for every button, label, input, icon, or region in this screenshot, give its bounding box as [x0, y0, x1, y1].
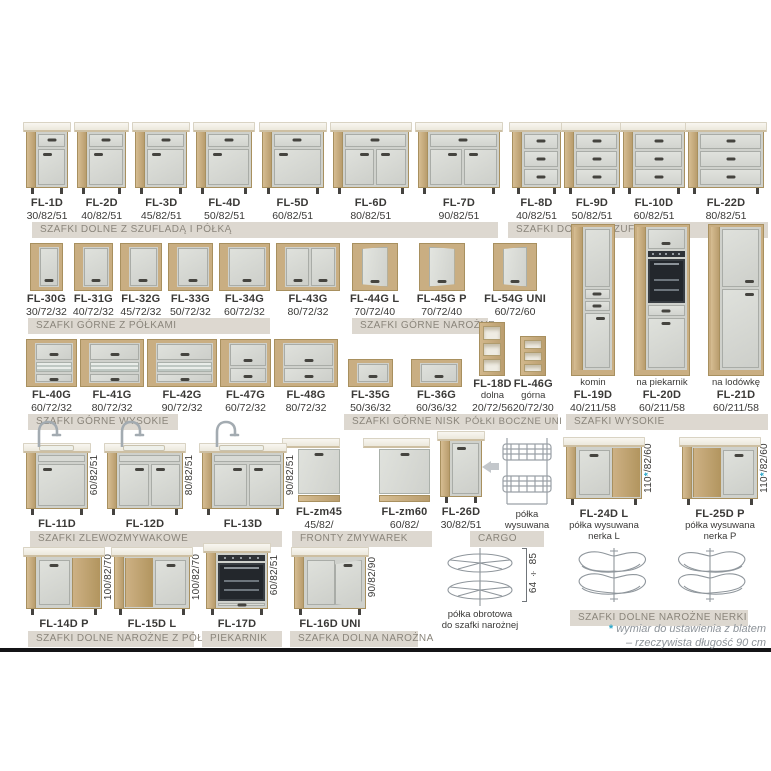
cabinet-leg	[693, 188, 696, 194]
cabinet-leg	[445, 497, 448, 503]
product-dims: 60/36/32	[416, 402, 457, 414]
wood-side	[263, 132, 272, 187]
door-front	[274, 149, 321, 185]
cabinet-handle	[94, 153, 103, 156]
product-code: FL-30G	[26, 293, 67, 306]
cabinet-illustration	[107, 443, 183, 509]
cabinet-handle	[437, 280, 446, 283]
product-code: FL-26D	[441, 506, 482, 519]
product-card: półkawysuwana	[499, 434, 555, 531]
drawer-front	[89, 134, 123, 147]
product-dims-vertical: 110*/82/60	[643, 443, 654, 493]
cabinet-handle	[242, 279, 251, 282]
product-card: FL-44G L70/72/40	[350, 243, 399, 318]
cabinet-illustration	[688, 122, 764, 188]
product-code: FL-20D	[636, 389, 687, 402]
product-card: 80/82/51FL-12D	[107, 443, 183, 531]
product-code: FL-48G	[286, 389, 327, 402]
countertop	[23, 443, 91, 453]
section-szafki-dolne-z-szufladami: FL-8D40/82/51 FL-9D50/82/51 FL-10D60/82/…	[508, 128, 768, 238]
product-dims: 30/72/32	[26, 306, 67, 318]
cabinet-illustration	[135, 122, 187, 188]
product-dims: 80/82/51	[350, 210, 391, 222]
cabinet-handle	[592, 158, 601, 161]
product-code: FL-9D	[572, 197, 613, 210]
product-note: nerka L	[569, 532, 639, 542]
cabinet-handle	[745, 280, 754, 283]
door-front	[40, 248, 58, 286]
cabinet-handle	[344, 564, 353, 567]
product-card: FL-zm6060/82/	[379, 438, 430, 531]
cabinet-handle	[110, 353, 119, 356]
cabinet-handle	[360, 153, 369, 156]
product-card: FL-30G30/72/32	[26, 243, 67, 318]
product-label: FL-9D50/82/51	[572, 197, 613, 222]
cabinet-illustration	[219, 243, 270, 291]
door-front	[585, 229, 610, 287]
product-card: FL-46Ggórna20/72/30	[513, 336, 554, 414]
glass-band	[36, 362, 72, 372]
cabinet-illustration	[682, 437, 758, 499]
cabinet-illustration	[419, 243, 465, 291]
drawer-front	[700, 169, 761, 185]
drawer-front	[208, 134, 249, 147]
countertop	[111, 547, 193, 557]
section-szafki-gorne-narozne: FL-44G L70/72/40FL-45G P70/72/40FL-54G U…	[346, 244, 550, 334]
section-piekarnik: 60/82/51FL-17D PIEKARNIK	[202, 550, 286, 647]
product-dims: 70/72/40	[417, 306, 467, 318]
faucet-icon	[210, 419, 244, 447]
door-front	[84, 248, 108, 286]
product-card: FL-42G90/72/32	[147, 339, 217, 414]
cabinet-leg	[492, 188, 495, 194]
product-label: FL-45G P70/72/40	[417, 293, 467, 318]
product-card: FL-4D50/82/51	[196, 122, 252, 222]
cabinet-handle	[662, 309, 671, 312]
product-card: na lodówkęFL-21D60/211/58	[708, 224, 764, 414]
cabinet-handle	[593, 293, 602, 296]
cabinet-illustration	[512, 122, 561, 188]
product-note: komin	[570, 378, 616, 388]
cabinet-handle	[745, 293, 754, 296]
asterisk: *	[643, 472, 654, 476]
product-label: FL-10D60/82/51	[634, 197, 675, 222]
cabinet-illustration	[564, 122, 620, 188]
cabinet-handle	[244, 375, 253, 378]
cabinet-leg	[569, 188, 572, 194]
dishwasher-front-illustration	[298, 438, 340, 502]
cabinet-handle	[188, 279, 197, 282]
product-card: 64 ÷ 85półka obrotowado szafki narożnej	[438, 546, 522, 631]
product-card: FL-7D90/82/51	[418, 122, 500, 222]
cabinet-handle	[304, 359, 313, 362]
product-row: FL-26D30/82/51półkawysuwana	[436, 436, 548, 531]
product-label: FL-zm6060/82/	[381, 506, 427, 531]
drawer-front	[635, 151, 682, 167]
countertop	[282, 438, 340, 448]
product-card: 90/82/90FL-16D UNI	[294, 547, 366, 631]
wood-side	[295, 557, 304, 608]
product-dims: 20/72/30	[513, 402, 554, 414]
product-dims: 60/211/58	[636, 402, 687, 414]
door-front	[430, 149, 463, 185]
product-label: FL-26D30/82/51	[441, 506, 482, 531]
corner-door-front	[503, 247, 527, 287]
cabinet-leg	[207, 509, 210, 515]
door-front	[421, 364, 457, 382]
door-front	[130, 248, 157, 286]
section-szafki-dolne-narozne-nerki: 110*/82/60FL-24D Lpółka wysuwananerka L …	[562, 436, 762, 626]
wood-side	[108, 453, 117, 508]
product-dims: 60/82/51	[272, 210, 313, 222]
product-note: półka wysuwana	[685, 521, 755, 531]
cabinet-handle	[135, 468, 144, 471]
drawer-front	[274, 134, 321, 147]
door-front	[38, 464, 85, 506]
cabinet-handle	[654, 140, 663, 143]
wood-panel	[72, 558, 100, 607]
product-label: FL-6D80/82/51	[350, 197, 391, 222]
cabinet-leg	[474, 497, 477, 503]
cabinet-handle	[50, 353, 59, 356]
product-label: FL-35G50/36/32	[350, 389, 391, 414]
product-dims: 60/82/51	[634, 210, 675, 222]
product-code: FL-42G	[162, 389, 203, 402]
cabinet-leg	[31, 509, 34, 515]
cabinet-illustration	[80, 339, 144, 387]
product-card: FL-22D80/82/51	[688, 122, 764, 222]
door-front	[298, 449, 340, 494]
cabinet-handle	[293, 139, 302, 142]
product-note: nerka P	[685, 532, 755, 542]
wood-side	[136, 132, 145, 187]
cabinet-illustration	[74, 243, 113, 291]
countertop	[74, 122, 129, 132]
cabinet-handle	[596, 317, 605, 320]
product-dims: 80/72/32	[286, 402, 327, 414]
drawer-front	[635, 169, 682, 185]
product-label: FL-42G90/72/32	[162, 389, 203, 414]
oven-icon	[648, 259, 685, 303]
door-front	[90, 374, 139, 382]
cabinet-handle	[47, 139, 56, 142]
product-dims-vertical: 110*/82/60	[759, 443, 770, 493]
door-front	[648, 229, 685, 249]
wood-panel	[612, 448, 640, 497]
cabinet-leg	[756, 188, 759, 194]
product-code: FL-16D UNI	[299, 618, 360, 631]
product-card: FL-45G P70/72/40	[417, 243, 467, 318]
product-code: FL-15D L	[128, 618, 177, 631]
cabinet-handle	[592, 175, 601, 178]
product-code: FL-12D	[126, 518, 164, 531]
cabinet-leg	[119, 609, 122, 615]
cabinet-handle	[662, 322, 671, 325]
door-front	[36, 344, 72, 360]
section-header: SZAFKI GÓRNE NISKIE	[344, 414, 466, 430]
cabinet-illustration	[77, 122, 126, 188]
product-code: FL-17D	[218, 618, 256, 631]
cabinet-handle	[44, 279, 53, 282]
product-label: FL-24D Lpółka wysuwananerka L	[569, 508, 639, 542]
product-code: FL-6D	[350, 197, 391, 210]
cabinet-leg	[94, 609, 97, 615]
drawer-front	[576, 151, 617, 167]
cabinet-handle	[152, 153, 161, 156]
cabinet-handle	[304, 375, 313, 378]
cabinet-leg	[179, 188, 182, 194]
countertop	[509, 122, 564, 132]
cabinet-illustration	[262, 122, 324, 188]
carousel-shelf-icon	[438, 546, 522, 608]
product-row: FL-40G60/72/32FL-41G80/72/32FL-42G90/72/…	[22, 338, 342, 414]
door-front	[379, 449, 430, 494]
door-front	[155, 560, 186, 605]
cabinet-illustration	[411, 359, 462, 387]
product-code: FL-14D P	[39, 618, 88, 631]
section-header: CARGO	[470, 531, 544, 547]
product-card: FL-2D40/82/51	[77, 122, 126, 222]
door-front	[36, 374, 72, 382]
cabinet-leg	[201, 188, 204, 194]
product-label: na lodówkęFL-21D60/211/58	[712, 378, 760, 414]
arrow-left-icon	[482, 461, 499, 473]
countertop	[363, 438, 430, 448]
product-card: 100/82/70FL-14D P	[26, 547, 102, 631]
product-note: półka wysuwana	[569, 521, 639, 531]
product-card: FL-35G50/36/32	[348, 359, 393, 414]
product-code: FL-19D	[570, 389, 616, 402]
product-dims-vertical: 60/82/51	[269, 555, 280, 596]
product-code: FL-4D	[204, 197, 245, 210]
product-note: do szafki narożnej	[442, 621, 519, 631]
cabinet-handle	[537, 140, 546, 143]
product-dims: 60/72/32	[225, 402, 266, 414]
cabinet-leg	[182, 609, 185, 615]
cabinet-leg	[299, 609, 302, 615]
section-header: SZAFKI DOLNE Z SZUFLADĄ I PÓŁKĄ	[32, 222, 498, 238]
product-label: FL-13D	[224, 518, 262, 531]
cabinet-handle	[166, 564, 175, 567]
product-card: FL-8D40/82/51	[512, 122, 561, 222]
product-card: FL-10D60/82/51	[623, 122, 685, 222]
product-code: FL-10D	[634, 197, 675, 210]
product-card: 60/82/51FL-17D	[206, 543, 268, 631]
product-note: dolna	[472, 391, 513, 401]
cabinet-handle	[254, 468, 263, 471]
cabinet-leg	[140, 188, 143, 194]
cabinet-handle	[435, 375, 444, 378]
cabinet-leg	[553, 188, 556, 194]
wood-side	[203, 453, 212, 508]
footnote-line-1: * wymiar do ustawienia z blatem	[609, 623, 766, 637]
product-card: FL-43G80/72/32	[276, 243, 340, 318]
drawer-front	[576, 134, 617, 150]
product-dims: 45/72/32	[120, 306, 161, 318]
product-card: 110*/82/60FL-25D Ppółka wysuwananerka P	[682, 437, 758, 542]
cabinet-leg	[750, 499, 753, 505]
product-row: FL-30G30/72/32FL-31G40/72/32FL-32G45/72/…	[22, 244, 344, 318]
product-card: FL-41G80/72/32	[80, 339, 144, 414]
section-szafki-zlewozmywakowe: 60/82/51FL-11D 80/82/51FL-12D 90/82/51FL…	[22, 436, 288, 547]
door-front	[214, 464, 247, 506]
product-dims: 90/82/51	[439, 210, 480, 222]
dimension-bracket	[522, 548, 527, 602]
cabinet-handle	[511, 280, 520, 283]
countertop	[561, 122, 623, 132]
cabinet-illustration	[26, 547, 102, 609]
door-front	[89, 149, 123, 185]
wood-panel	[693, 448, 721, 497]
cabinet-handle	[43, 153, 52, 156]
product-card: FL-6D80/82/51	[333, 122, 409, 222]
accessory-row	[562, 546, 762, 604]
door-front	[307, 560, 335, 605]
product-card: na piekarnikFL-20D60/211/58	[634, 224, 690, 414]
product-label: na piekarnikFL-20D60/211/58	[636, 378, 687, 414]
oven-controls	[218, 555, 265, 561]
cabinet-leg	[244, 188, 247, 194]
door-front	[178, 248, 208, 286]
drawer-front	[700, 134, 761, 150]
door-front	[376, 149, 406, 185]
product-label: FL-30G30/72/32	[26, 293, 67, 318]
door-front	[579, 450, 610, 495]
cabinet-handle	[213, 153, 222, 156]
countertop	[104, 443, 186, 453]
product-label: półka obrotowado szafki narożnej	[442, 610, 519, 631]
kidney-shelf-icon	[572, 546, 656, 604]
product-dims: 45/82/51	[141, 210, 182, 222]
product-card: FL-zm4545/82/	[296, 438, 342, 531]
countertop	[23, 547, 105, 557]
footnote-line-2: – rzeczywista długość 90 cm	[609, 637, 766, 651]
cabinet-leg	[60, 188, 63, 194]
product-card	[572, 546, 656, 604]
product-label: FL-48G80/72/32	[286, 389, 327, 414]
product-note: na piekarnik	[636, 378, 687, 388]
product-card: FL-18Ddolna20/72/56	[472, 322, 513, 414]
cabinet-handle	[654, 158, 663, 161]
wood-side	[441, 441, 450, 496]
product-code: FL-47G	[225, 389, 266, 402]
product-code: FL-2D	[81, 197, 122, 210]
product-code: FL-13D	[224, 518, 262, 531]
product-label: półkawysuwana	[505, 510, 549, 531]
drawer-front	[218, 603, 265, 606]
product-label: FL-31G40/72/32	[73, 293, 114, 318]
cabinet-leg	[401, 188, 404, 194]
countertop	[563, 437, 645, 447]
product-dims-vertical: 90/82/90	[367, 557, 378, 598]
door-front	[119, 464, 149, 506]
countertop	[620, 122, 688, 132]
cabinet-handle	[459, 139, 468, 142]
cargo-basket-icon	[499, 434, 555, 508]
cabinet-handle	[156, 468, 165, 471]
product-code: FL-5D	[272, 197, 313, 210]
section-polki-boczne-uni: FL-18Ddolna20/72/56FL-46Ggórna20/72/30 P…	[468, 334, 556, 430]
product-code: FL-33G	[170, 293, 211, 306]
section-szafki-gorne-niskie: FL-35G50/36/32FL-36G60/36/32 SZAFKI GÓRN…	[344, 338, 466, 430]
cabinet-illustration	[352, 243, 398, 291]
wood-side	[624, 132, 633, 187]
cabinet-leg	[316, 188, 319, 194]
product-dims: 80/72/32	[288, 306, 329, 318]
door-front	[157, 374, 212, 382]
drawer-front	[524, 169, 558, 185]
countertop	[259, 122, 327, 132]
section-header: SZAFKI GÓRNE Z PÓŁKAMI	[28, 318, 270, 334]
cabinet-illustration	[348, 359, 393, 387]
cabinet-leg	[517, 188, 520, 194]
wood-side	[683, 447, 692, 498]
cabinet-handle	[315, 453, 324, 456]
cabinet-leg	[276, 509, 279, 515]
cabinet-handle	[469, 153, 478, 156]
door-front	[464, 149, 497, 185]
section-szafki-dolne-narozne-z-polka: 100/82/70FL-14D P 100/82/70FL-15D L SZAF…	[22, 550, 194, 647]
cabinet-illustration	[26, 443, 88, 509]
product-card: 110*/82/60FL-24D Lpółka wysuwananerka L	[566, 437, 642, 542]
product-label: FL-33G50/72/32	[170, 293, 211, 318]
drawer-front	[648, 305, 685, 316]
cabinet-illustration	[571, 224, 615, 376]
product-label: FL-4D50/82/51	[204, 197, 245, 222]
drawer-front	[147, 134, 184, 147]
section-fronty-zmywarek: FL-zm4545/82/FL-zm6060/82/ FRONTY ZMYWAR…	[292, 436, 434, 547]
wood-side	[567, 447, 576, 498]
wood-side	[334, 132, 343, 187]
wood-side	[197, 132, 206, 187]
cabinet-handle	[662, 242, 671, 245]
product-label: FL-34G60/72/32	[224, 293, 265, 318]
product-label: FL-47G60/72/32	[225, 389, 266, 414]
product-card: FL-36G60/36/32	[411, 359, 462, 414]
product-label: FL-zm4545/82/	[296, 506, 342, 531]
kidney-shelf-icon	[668, 546, 752, 604]
product-dims: 60/72/60	[484, 306, 546, 318]
cabinet-illustration	[623, 122, 685, 188]
cabinet-handle	[293, 279, 302, 282]
cabinet-illustration	[566, 437, 642, 499]
product-code: FL-41G	[92, 389, 133, 402]
drawer-front	[38, 134, 65, 147]
section-header: SZAFKI WYSOKIE	[566, 414, 768, 430]
catalog-page: FL-1D30/82/51 FL-2D40/82/51 FL-3D45/82/5…	[0, 0, 771, 771]
product-code: FL-3D	[141, 197, 182, 210]
drawer-front	[430, 134, 497, 147]
corner-door-front	[429, 247, 455, 287]
product-label: FL-17D	[218, 618, 256, 631]
product-row: FL-zm4545/82/FL-zm6060/82/	[292, 436, 434, 531]
door-front	[249, 464, 282, 506]
product-row: FL-1D30/82/51 FL-2D40/82/51 FL-3D45/82/5…	[22, 128, 504, 222]
product-dims: 50/82/51	[204, 210, 245, 222]
product-row: FL-44G L70/72/40FL-45G P70/72/40FL-54G U…	[346, 244, 550, 318]
product-card: FL-9D50/82/51	[564, 122, 620, 222]
door-front	[722, 289, 759, 368]
product-row: FL-8D40/82/51 FL-9D50/82/51 FL-10D60/82/…	[508, 128, 768, 222]
cabinet-illustration	[294, 547, 366, 609]
product-card: 100/82/70FL-15D L	[114, 547, 190, 631]
cabinet-handle	[726, 175, 735, 178]
wood-panel	[125, 558, 153, 607]
product-label: FL-16D UNI	[299, 618, 360, 631]
product-dims: 45/82/	[296, 519, 342, 531]
product-code: FL-45G P	[417, 293, 467, 306]
drawer-front	[524, 151, 558, 167]
